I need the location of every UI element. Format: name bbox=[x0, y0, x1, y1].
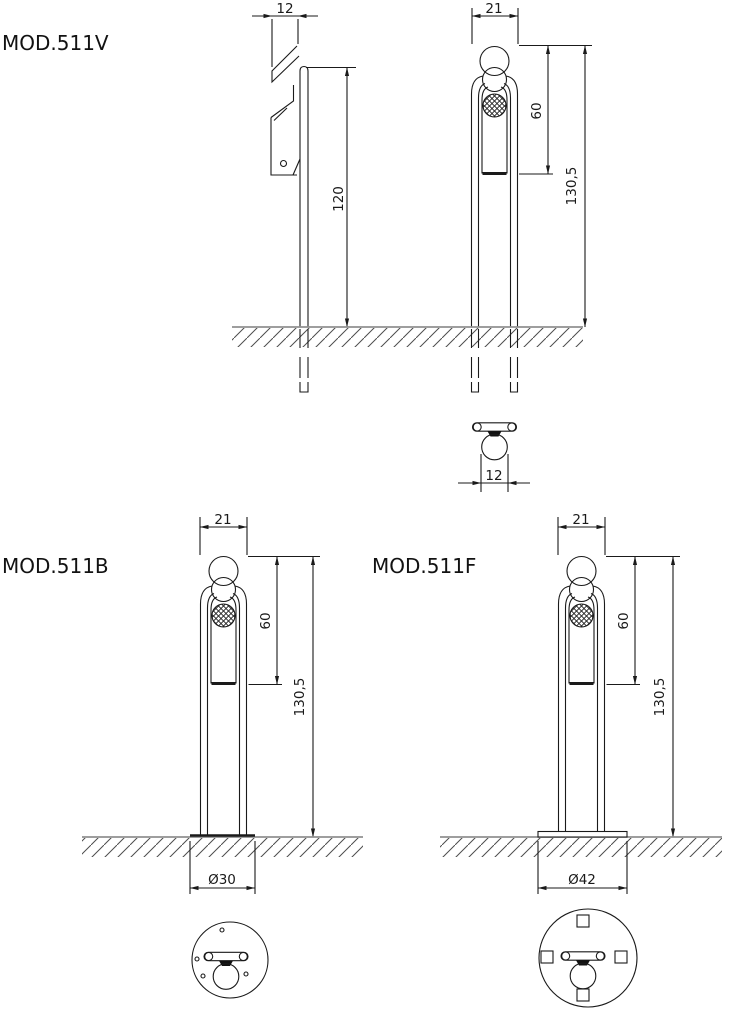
mounting-slot bbox=[577, 989, 589, 1001]
post-top-view-graphic bbox=[473, 423, 517, 460]
view-mod511v: 12 120 21 bbox=[232, 1, 592, 492]
base-plate-top-view bbox=[192, 922, 268, 998]
dim-label-base-diameter: Ø42 bbox=[568, 872, 596, 888]
dim-bracket-depth: 12 bbox=[252, 1, 318, 67]
technical-drawing-sheet: 12 120 21 bbox=[0, 0, 730, 1009]
bollard-front-view bbox=[201, 557, 247, 838]
model-title-511v: MOD.511V bbox=[2, 31, 109, 55]
bracket-hole bbox=[281, 161, 287, 167]
dim-total-height: 130,5 bbox=[652, 557, 673, 838]
bracket-cut-edge bbox=[293, 159, 300, 175]
dim-label-total-height: 130,5 bbox=[652, 678, 668, 717]
drawing-canvas: 12 120 21 bbox=[0, 0, 730, 1009]
bollard-front-view bbox=[559, 557, 605, 838]
model-title-511b: MOD.511B bbox=[2, 554, 109, 578]
dim-total-height: 130,5 bbox=[564, 46, 585, 328]
view-mod511f: 21 60 130,5 bbox=[440, 512, 722, 1007]
anchor-end bbox=[300, 382, 308, 392]
dim-label-head-width: 21 bbox=[214, 512, 231, 528]
dim-head-width: 21 bbox=[200, 512, 247, 555]
dim-total-height: 130,5 bbox=[292, 557, 313, 838]
mounting-hole bbox=[201, 974, 205, 978]
post-section bbox=[204, 952, 248, 989]
dim-label-tube-diameter: 12 bbox=[485, 468, 502, 484]
ground-hatch bbox=[440, 838, 722, 857]
post-side-view bbox=[300, 67, 308, 328]
post-top-view: 12 bbox=[458, 423, 530, 492]
anchor-plate bbox=[192, 922, 268, 998]
dim-label-total-height: 130,5 bbox=[292, 678, 308, 717]
model-title-511f: MOD.511F bbox=[372, 554, 476, 578]
mounting-slot bbox=[541, 951, 553, 963]
dim-label-panel-height: 60 bbox=[529, 102, 545, 119]
dim-label-bracket-depth: 12 bbox=[276, 1, 293, 17]
mounting-hole bbox=[244, 972, 248, 976]
dim-label-total-height: 130,5 bbox=[564, 167, 580, 206]
dim-head-width: 21 bbox=[472, 1, 518, 44]
dim-label-post-height: 120 bbox=[331, 186, 347, 212]
dim-panel-height: 60 bbox=[519, 46, 592, 175]
bollard-front-view bbox=[472, 47, 518, 328]
mounting-hole bbox=[195, 957, 199, 961]
dim-label-head-width: 21 bbox=[485, 1, 502, 17]
anchor-end bbox=[472, 382, 479, 392]
dim-post-height: 120 bbox=[306, 68, 356, 328]
anchor-end bbox=[511, 382, 518, 392]
post-section bbox=[561, 952, 605, 989]
ground-hatch bbox=[82, 838, 363, 857]
wall-bracket bbox=[271, 46, 300, 175]
ground bbox=[82, 836, 363, 858]
dim-label-head-width: 21 bbox=[572, 512, 589, 528]
mounting-slot bbox=[577, 915, 589, 927]
flange-disc bbox=[539, 909, 637, 1007]
dim-label-panel-height: 60 bbox=[616, 612, 632, 629]
ground bbox=[440, 832, 722, 858]
mounting-slot bbox=[615, 951, 627, 963]
bracket-upper-band bbox=[272, 46, 299, 82]
ground bbox=[232, 327, 583, 347]
dim-head-width: 21 bbox=[558, 512, 605, 555]
dim-label-panel-height: 60 bbox=[258, 612, 274, 629]
flange-plate bbox=[538, 832, 627, 838]
dim-panel-height: 60 bbox=[248, 557, 320, 685]
view-mod511b: 21 60 130,5 bbox=[82, 512, 363, 998]
flange-plate-top-view bbox=[539, 909, 637, 1007]
mounting-hole bbox=[220, 928, 224, 932]
dim-panel-height: 60 bbox=[606, 557, 680, 685]
dim-label-base-diameter: Ø30 bbox=[208, 872, 236, 888]
ground-hatch bbox=[232, 328, 583, 347]
